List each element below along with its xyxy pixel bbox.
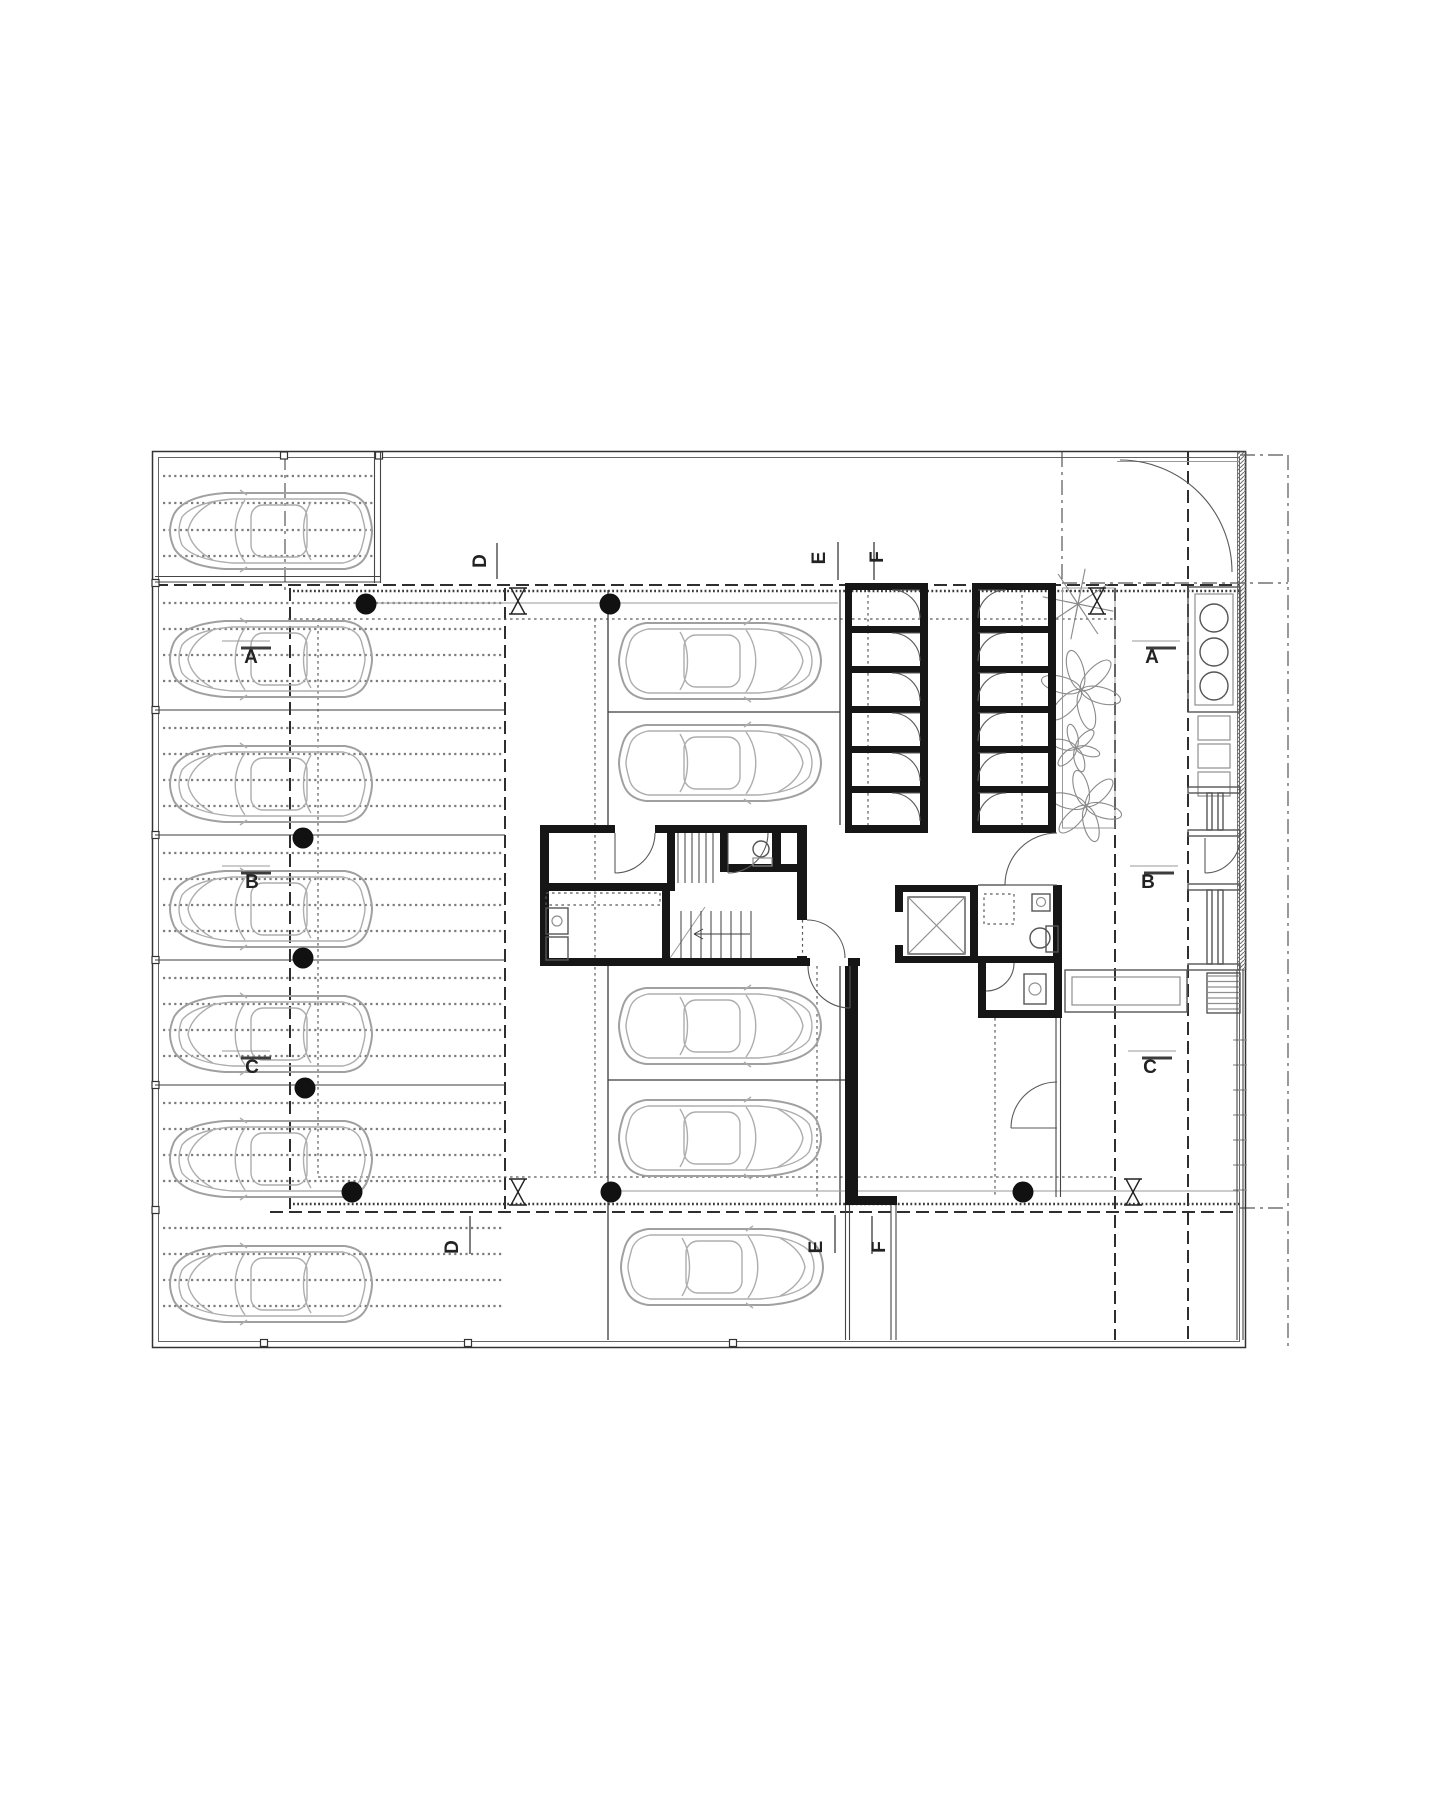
cell-divider xyxy=(972,746,1056,753)
column-dot xyxy=(342,1182,363,1203)
walls xyxy=(540,583,1062,1205)
cell-divider xyxy=(845,786,928,793)
parked-car xyxy=(170,1118,372,1200)
wall-tick xyxy=(730,1340,737,1347)
cell-door xyxy=(978,633,1006,661)
section-marker-c: C xyxy=(222,1051,271,1078)
parked-car xyxy=(619,985,821,1067)
cell-door xyxy=(978,793,1006,821)
cell-divider xyxy=(845,706,928,713)
wall-segment xyxy=(540,883,675,891)
wall-tick xyxy=(376,452,383,459)
wall-tick xyxy=(465,1340,472,1347)
wall-segment xyxy=(540,825,615,833)
toilet-icon xyxy=(1030,928,1050,948)
section-marker-d: D xyxy=(470,543,497,579)
cell-door xyxy=(978,713,1006,741)
column-dot xyxy=(356,594,377,615)
gate-frame xyxy=(1188,884,1240,890)
gate-jamb xyxy=(1207,890,1212,964)
gate-frame xyxy=(1188,830,1240,836)
wall-segment xyxy=(970,885,978,963)
gate-jamb xyxy=(1218,793,1223,830)
east-wall-hatch xyxy=(1238,452,1247,970)
section-markers: AABBCCDDEFEF xyxy=(222,542,1180,1254)
section-marker-a: A xyxy=(1132,641,1180,668)
side-passage xyxy=(1065,587,1247,1190)
cell-door xyxy=(892,753,920,781)
sink-icon xyxy=(1037,898,1046,907)
wall-segment xyxy=(720,825,728,870)
section-marker-e: E xyxy=(809,542,838,580)
heater-icon xyxy=(1029,983,1041,995)
section-marker-f: F xyxy=(869,1216,890,1254)
cell-door xyxy=(892,590,920,618)
wall-tick xyxy=(261,1340,268,1347)
wall-segment xyxy=(972,825,1056,833)
cell-door xyxy=(892,793,920,821)
door-swing xyxy=(808,966,850,1008)
wall-segment xyxy=(540,958,810,966)
column-tie-icon xyxy=(1124,1179,1142,1205)
column-tie-icon xyxy=(509,1179,527,1205)
gate-jamb xyxy=(1218,890,1223,964)
section-label: C xyxy=(1143,1057,1157,1078)
wall-segment xyxy=(848,958,860,966)
wall-segment xyxy=(772,825,781,870)
bathroom-floor xyxy=(978,885,1053,958)
door-swing xyxy=(1120,460,1232,572)
section-label: F xyxy=(869,1241,890,1253)
parked-car xyxy=(621,1226,823,1308)
wall-tick xyxy=(281,452,288,459)
wall-segment xyxy=(978,1010,1062,1018)
waste-bin-icon xyxy=(1200,604,1228,632)
wall-segment xyxy=(845,1196,897,1205)
plant-flower-icon xyxy=(1049,769,1124,844)
wall-segment xyxy=(978,963,986,1010)
section-label: B xyxy=(1141,872,1155,893)
wall-segment xyxy=(972,583,1056,590)
wall-segment xyxy=(845,583,928,590)
lobby-hatch xyxy=(807,833,1053,958)
section-label: A xyxy=(1145,647,1159,668)
section-label: F xyxy=(867,551,888,563)
shower-area xyxy=(984,894,1014,924)
parked-car xyxy=(619,1097,821,1179)
wall-segment xyxy=(540,825,549,966)
wall-tick xyxy=(152,580,159,587)
column-dot xyxy=(293,828,314,849)
wall-segment xyxy=(895,956,1062,963)
wall-segment xyxy=(845,825,928,833)
plant-flower-icon xyxy=(1051,723,1101,773)
wall-tick xyxy=(152,1207,159,1214)
column-dot xyxy=(1013,1182,1034,1203)
wc-sink-icon xyxy=(753,841,769,857)
floor-plan-drawing: AABBCCDDEFEF xyxy=(0,0,1440,1800)
column-dot xyxy=(600,594,621,615)
parked-car xyxy=(170,743,372,825)
section-marker-b: B xyxy=(1130,866,1178,893)
section-label: D xyxy=(470,554,491,568)
door-swing xyxy=(1205,838,1240,873)
cell-divider xyxy=(845,746,928,753)
cell-divider xyxy=(972,706,1056,713)
wall-segment xyxy=(895,885,978,892)
section-label: E xyxy=(809,552,830,565)
storage-cells xyxy=(845,590,1056,821)
meter-box xyxy=(1198,744,1230,768)
bin-store xyxy=(1188,587,1240,712)
section-label: E xyxy=(806,1241,827,1254)
floor-fills xyxy=(807,833,1054,1010)
cell-divider xyxy=(972,626,1056,633)
section-marker-d: D xyxy=(442,1216,470,1254)
gate-frame xyxy=(1188,787,1240,793)
door-swing xyxy=(1005,833,1057,885)
waste-bin-icon xyxy=(1200,672,1228,700)
wall-segment xyxy=(845,966,858,1198)
cell-door xyxy=(978,590,1006,618)
cell-door xyxy=(978,673,1006,701)
wall-segment xyxy=(720,864,807,872)
wall-segment xyxy=(662,891,670,966)
parked-car xyxy=(170,993,372,1075)
wall-segment xyxy=(655,825,807,833)
section-marker-c: C xyxy=(1128,1051,1176,1078)
parked-car xyxy=(619,620,821,702)
cell-divider xyxy=(972,666,1056,673)
cell-divider xyxy=(845,666,928,673)
column-dot xyxy=(293,948,314,969)
gate-jamb xyxy=(1207,793,1212,830)
kitchen-unit xyxy=(546,908,568,934)
parked-car xyxy=(170,868,372,950)
cell-divider xyxy=(972,786,1056,793)
sink-icon xyxy=(552,916,562,926)
water-heater xyxy=(1024,974,1046,1004)
cell-divider xyxy=(845,626,928,633)
parked-car xyxy=(170,618,372,700)
cell-door xyxy=(892,713,920,741)
closet-floor xyxy=(986,963,1054,1010)
meter-box xyxy=(1198,716,1230,740)
site-wall-inner xyxy=(159,458,1240,1342)
cell-door xyxy=(892,633,920,661)
section-marker-f: F xyxy=(867,542,888,580)
door-swing xyxy=(986,963,1014,991)
wall-segment xyxy=(1054,963,1062,1018)
wall-segment xyxy=(797,825,807,920)
section-label: C xyxy=(245,1057,259,1078)
bath-sink xyxy=(1032,894,1050,911)
column-dot xyxy=(295,1078,316,1099)
bench xyxy=(1065,970,1187,1012)
bench-inner xyxy=(1072,977,1180,1005)
column-dot xyxy=(601,1182,622,1203)
section-label: D xyxy=(442,1240,463,1254)
gate-frame xyxy=(1188,964,1240,970)
door-swing xyxy=(615,833,655,873)
door-swing xyxy=(1011,1082,1057,1128)
boundary-lines xyxy=(155,452,1288,1348)
floor-plan-sheet: AABBCCDDEFEF xyxy=(0,0,1440,1800)
cell-door xyxy=(978,753,1006,781)
waste-bin-icon xyxy=(1200,638,1228,666)
section-marker-a: A xyxy=(222,641,271,668)
wall-segment xyxy=(667,825,675,885)
parked-car xyxy=(170,1243,372,1325)
kitchen-counter xyxy=(546,893,660,905)
cell-door xyxy=(892,673,920,701)
door-swing xyxy=(807,920,845,958)
kitchen-unit xyxy=(546,937,568,960)
section-marker-e: E xyxy=(806,1215,835,1253)
parked-car xyxy=(619,722,821,804)
section-label: A xyxy=(244,647,258,668)
section-label: B xyxy=(245,872,259,893)
